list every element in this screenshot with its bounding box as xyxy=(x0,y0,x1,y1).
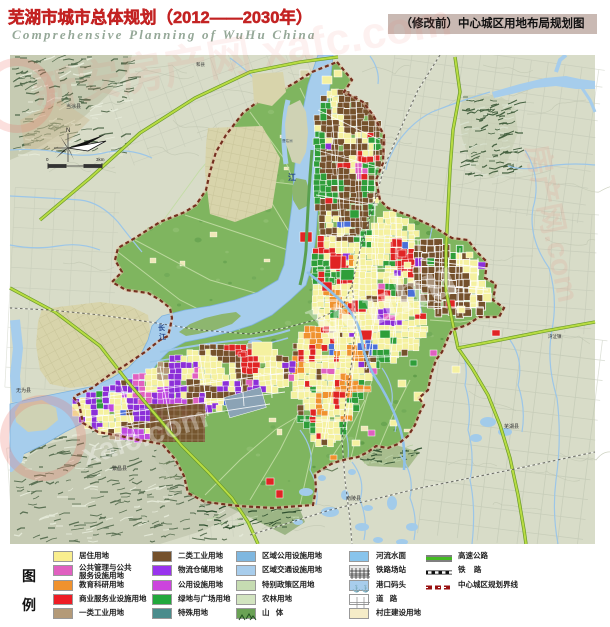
svg-text:N: N xyxy=(66,128,70,134)
svg-text:曹姑洲: 曹姑洲 xyxy=(282,138,293,143)
svg-text:3km: 3km xyxy=(96,157,105,162)
svg-text:湾沚镇: 湾沚镇 xyxy=(548,333,562,340)
svg-text:⚓: ⚓ xyxy=(352,584,361,593)
svg-text:长: 长 xyxy=(158,323,166,332)
svg-text:繁昌县: 繁昌县 xyxy=(112,465,127,472)
svg-text:无为县: 无为县 xyxy=(16,387,31,394)
svg-text:江: 江 xyxy=(288,172,296,182)
svg-text:芜湖县: 芜湖县 xyxy=(504,423,519,430)
svg-text:⚓: ⚓ xyxy=(361,584,370,593)
svg-text:江: 江 xyxy=(159,332,166,341)
svg-text:南陵县: 南陵县 xyxy=(346,495,361,502)
